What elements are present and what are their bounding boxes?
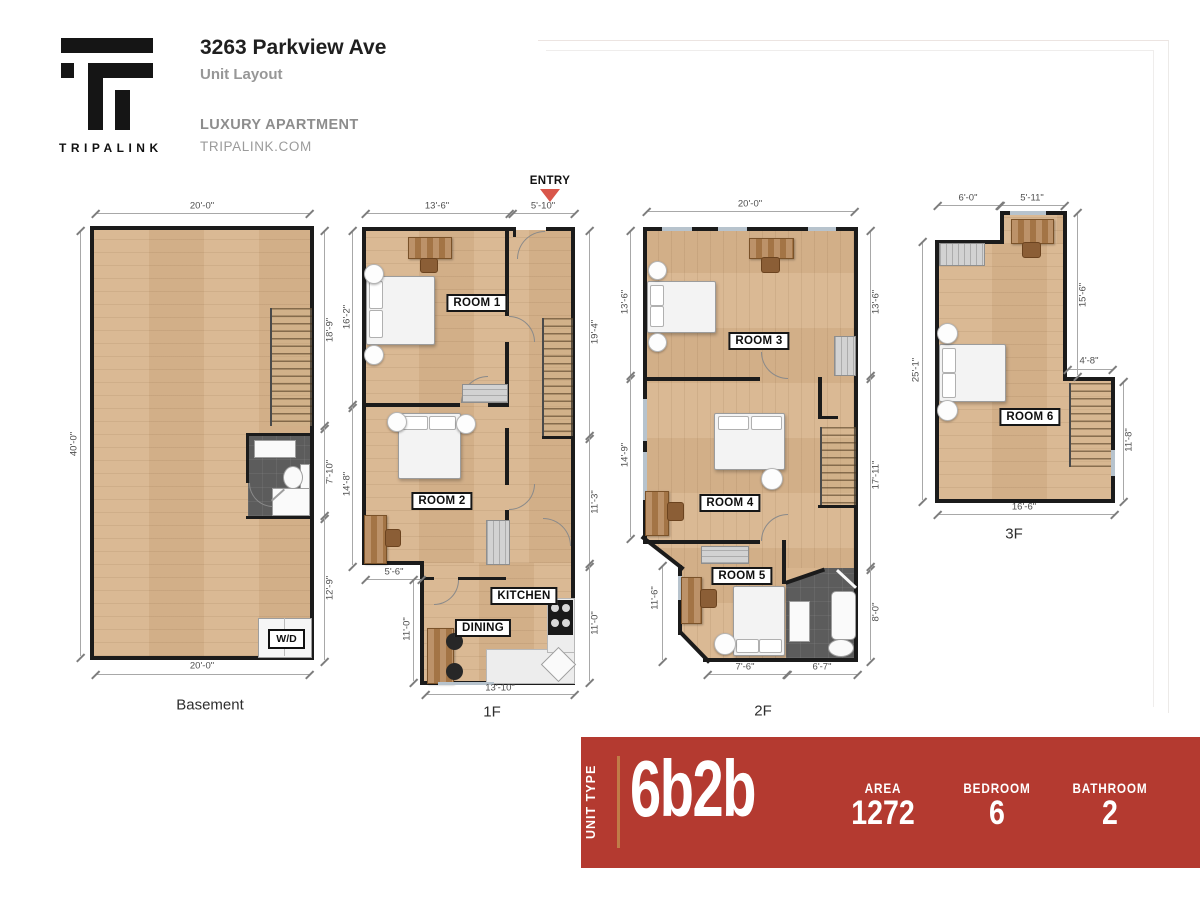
wall [703, 658, 858, 662]
pillow [942, 348, 956, 373]
dresser [462, 384, 508, 403]
dimension-line [95, 213, 310, 214]
dimension-label: 4'-8" [1080, 356, 1099, 367]
dimension-label: 5'-10" [531, 201, 555, 212]
nightstand [648, 333, 667, 352]
room-label: ROOM 5 [711, 567, 772, 585]
stairs [820, 427, 856, 505]
dimension-line [95, 674, 310, 675]
wall [1063, 377, 1115, 381]
dimension-line [922, 243, 923, 500]
stat-area-value: 1272 [833, 796, 934, 832]
wall [505, 428, 509, 485]
window [808, 227, 836, 231]
pillow [429, 416, 456, 430]
nightstand [937, 400, 958, 421]
bay-cut [641, 568, 680, 662]
stairs [1069, 383, 1111, 467]
dimension-line [365, 213, 510, 214]
window [1010, 211, 1046, 215]
room-label: KITCHEN [490, 587, 557, 605]
header-tagline: LUXURY APARTMENT [200, 117, 359, 133]
desk [749, 238, 794, 259]
dimension-label: 14'-9" [620, 443, 631, 467]
wall [90, 226, 94, 660]
dimension-label: 15'-6" [1078, 283, 1089, 307]
unit-type-label: UNIT TYPE [584, 755, 602, 849]
dimension-line [1000, 205, 1065, 206]
page-subtitle: Unit Layout [200, 66, 283, 83]
entry-label: ENTRY [530, 175, 571, 187]
stairs [270, 308, 312, 426]
dimension-line [425, 694, 575, 695]
dimension-label: 13'-6" [620, 290, 631, 314]
desk [408, 237, 452, 259]
wall [310, 226, 314, 660]
floor-name: 2F [754, 703, 772, 720]
desk [681, 577, 702, 624]
desk [364, 515, 387, 564]
dimension-line [512, 213, 575, 214]
dimension-line [787, 674, 858, 675]
stat-bathroom: BATHROOM 2 [1060, 780, 1161, 832]
pillow [718, 416, 749, 430]
wall [362, 227, 515, 231]
dimension-label: 14'-8" [342, 472, 353, 496]
wall [246, 433, 249, 483]
nightstand [364, 264, 384, 284]
window [718, 227, 747, 231]
pillow [650, 285, 664, 306]
dimension-line [1067, 369, 1113, 370]
dresser [486, 520, 510, 565]
dimension-label: 20'-0" [738, 199, 762, 210]
room-label: ROOM 1 [446, 294, 507, 312]
window [1111, 450, 1115, 476]
nightstand [387, 412, 407, 432]
wall [643, 377, 760, 381]
pillow [736, 639, 759, 653]
unit-layout-poster: TRIPALINK 3263 Parkview Ave Unit Layout … [0, 0, 1200, 917]
wall [818, 377, 822, 419]
logo-bar [61, 38, 153, 53]
dresser [939, 243, 985, 266]
wall [246, 516, 312, 519]
nightstand [761, 468, 783, 490]
floor-name: Basement [176, 697, 244, 714]
stat-area: AREA 1272 [833, 780, 934, 832]
sink [254, 440, 296, 458]
dimension-label: 6'-7" [813, 662, 832, 673]
dimension-label: 11'-0" [590, 611, 601, 635]
wall [1000, 211, 1004, 241]
pillow [751, 416, 782, 430]
logo-bar [61, 63, 74, 78]
chair [761, 257, 780, 273]
dimension-label: 16'-6" [1012, 502, 1036, 513]
dimension-label: 40'-0" [69, 432, 80, 456]
dimension-line [413, 581, 414, 681]
chair [420, 258, 438, 273]
banner-accent-line [617, 756, 620, 848]
bathtub [831, 591, 856, 640]
dimension-label: 5'-11" [1020, 193, 1044, 204]
dimension-line [80, 232, 81, 656]
wall [90, 226, 314, 230]
dimension-label: 8'-0" [871, 603, 882, 622]
dimension-line [646, 211, 855, 212]
nightstand [648, 261, 667, 280]
wd-label: W/D [268, 629, 305, 649]
header-website: TRIPALINK.COM [200, 139, 312, 154]
dimension-label: 11'-8" [1124, 428, 1135, 452]
room-label: ROOM 6 [999, 408, 1060, 426]
dimension-label: 13'-6" [425, 201, 449, 212]
desk [645, 491, 669, 536]
dimension-label: 11'-0" [402, 617, 413, 641]
chair [385, 529, 401, 547]
dresser [834, 336, 856, 376]
wall [1063, 211, 1067, 381]
logo-bar [88, 63, 103, 130]
chair [700, 589, 717, 608]
window [643, 399, 647, 441]
room-label: DINING [455, 619, 511, 637]
dimension-line [937, 514, 1115, 515]
dimension-label: 20'-0" [190, 661, 214, 672]
pillow [942, 373, 956, 398]
dimension-label: 19'-4" [590, 320, 601, 344]
nightstand [456, 414, 476, 434]
dining-chair [446, 663, 463, 680]
dimension-line [707, 674, 787, 675]
dimension-label: 11'-6" [650, 586, 661, 610]
room-label: ROOM 4 [699, 494, 760, 512]
brand-name: TRIPALINK [59, 141, 163, 155]
dimension-label: 12'-9" [325, 576, 336, 600]
unit-type-value: 6b2b [630, 749, 755, 829]
dimension-line [662, 567, 663, 660]
wall [362, 403, 460, 407]
wall [246, 433, 312, 436]
dimension-label: 11'-3" [590, 490, 601, 514]
stove-burner [562, 604, 570, 612]
wall [513, 227, 516, 237]
dimension-label: 7'-6" [736, 662, 755, 673]
stat-bedroom-value: 6 [947, 796, 1048, 832]
dimension-label: 20'-0" [190, 201, 214, 212]
dimension-label: 13'-10" [485, 683, 514, 694]
dimension-label: 16'-2" [342, 305, 353, 329]
pillow [369, 281, 383, 309]
floor-name: 1F [483, 704, 501, 721]
toilet-bowl [283, 466, 303, 489]
pillow [650, 306, 664, 327]
logo-bar [115, 90, 130, 130]
wall [542, 436, 575, 439]
floor-name: 3F [1005, 526, 1023, 543]
pillow [369, 310, 383, 338]
dimension-label: 25'-1" [911, 358, 922, 382]
dimension-line [937, 205, 1000, 206]
dimension-label: 18'-9" [325, 318, 336, 342]
chair [667, 502, 684, 521]
dimension-label: 17'-11" [871, 461, 882, 490]
wall [818, 416, 838, 419]
dimension-label: 13'-6" [871, 290, 882, 314]
page-title: 3263 Parkview Ave [200, 36, 386, 60]
pillow [759, 639, 782, 653]
dimension-label: 7'-10" [325, 460, 336, 484]
desk [1011, 219, 1054, 244]
dresser [701, 546, 749, 564]
nightstand [714, 633, 736, 655]
vanity-sink [789, 601, 810, 642]
wall [458, 577, 506, 580]
stove-burner [551, 604, 559, 612]
toilet [828, 639, 854, 657]
stairs [542, 318, 573, 436]
wall [1111, 377, 1115, 503]
wall [818, 505, 858, 508]
nightstand [937, 323, 958, 344]
room-label: ROOM 3 [728, 332, 789, 350]
wall [488, 403, 509, 407]
nightstand [364, 345, 384, 365]
window [662, 227, 692, 231]
stove-burner [551, 619, 559, 627]
dimension-label: 5'-6" [385, 567, 404, 578]
wall [643, 540, 760, 544]
chair [1022, 242, 1041, 258]
room-label: ROOM 2 [411, 492, 472, 510]
dimension-label: 6'-0" [959, 193, 978, 204]
wd-label-text: W/D [276, 633, 296, 645]
stove-burner [562, 619, 570, 627]
stat-bedroom: BEDROOM 6 [947, 780, 1048, 832]
stat-bathroom-value: 2 [1060, 796, 1161, 832]
